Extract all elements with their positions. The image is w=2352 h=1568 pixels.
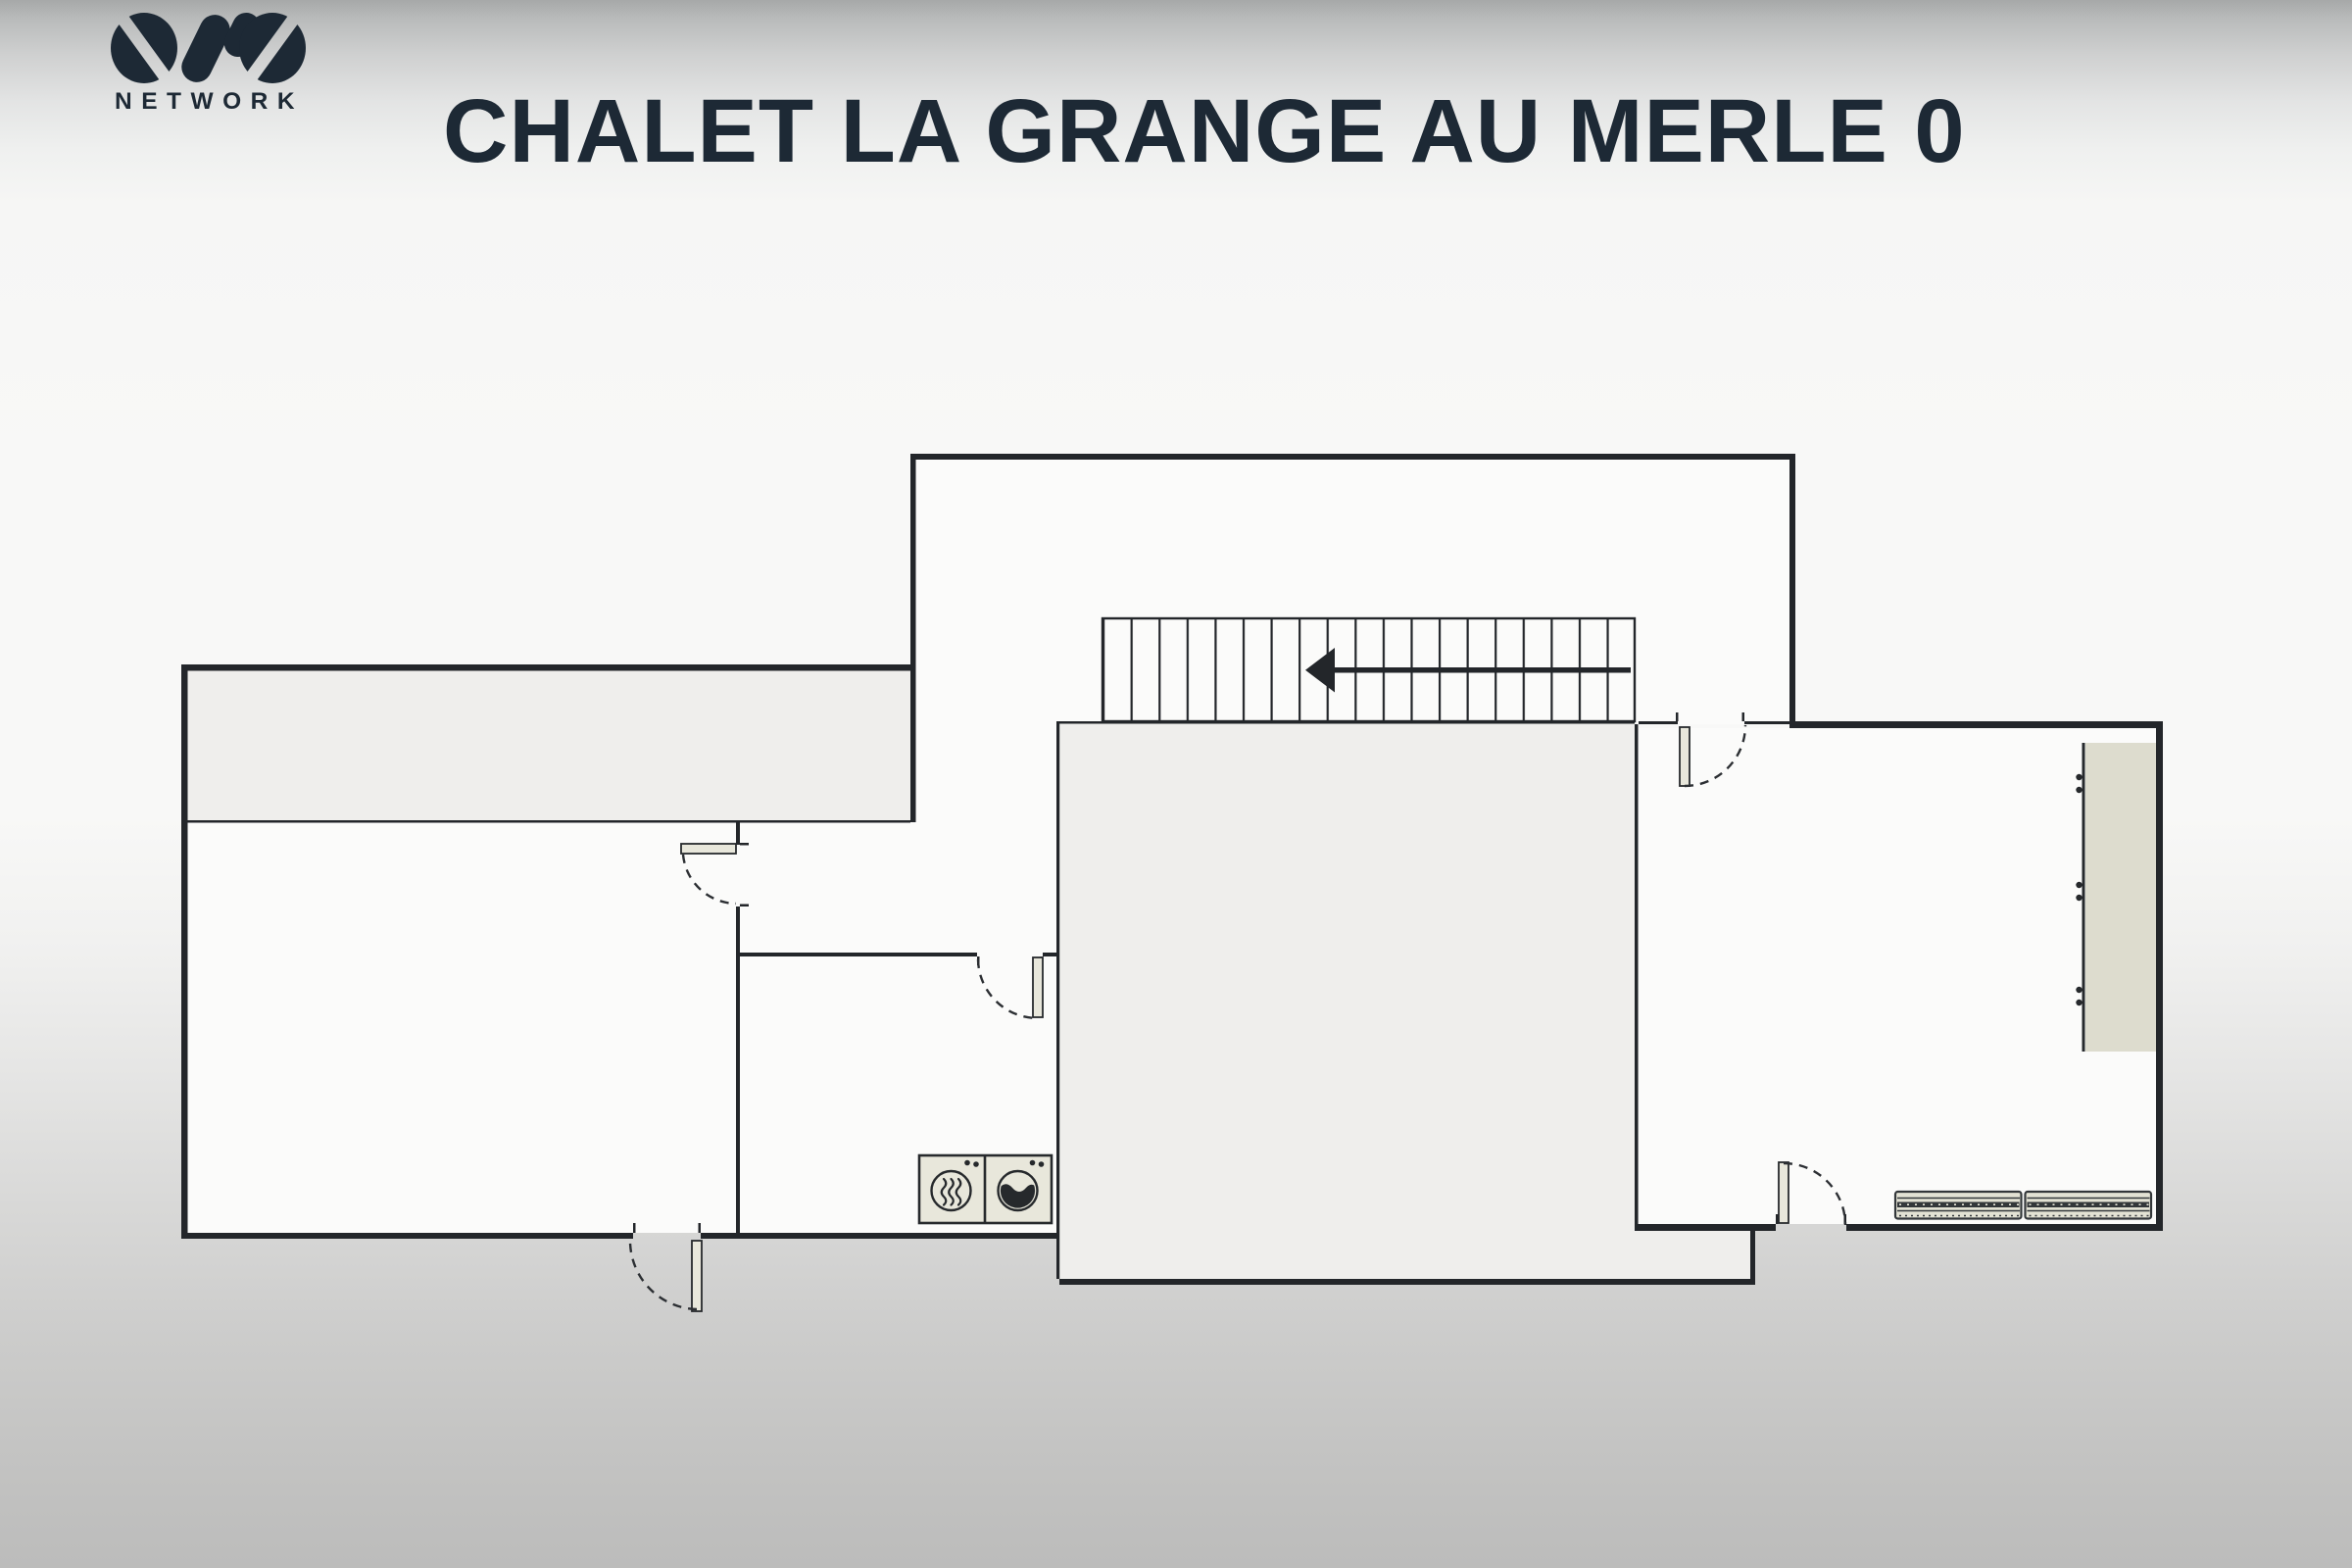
room-right xyxy=(1639,728,2156,1224)
room-left xyxy=(187,822,740,1233)
door-left-room-exterior xyxy=(630,1241,702,1311)
laundry-appliance-unit xyxy=(919,1155,1052,1223)
room-vestibule-upper xyxy=(915,721,1056,822)
staircase xyxy=(1102,618,1635,721)
room-vestibule xyxy=(740,822,1056,956)
wardrobe xyxy=(2076,743,2156,1052)
terrace-strip xyxy=(187,670,910,820)
bench-left xyxy=(1895,1192,2022,1219)
bench-right xyxy=(2026,1192,2152,1219)
page: NETWORK CHALET LA GRANGE AU MERLE 0 xyxy=(0,0,2352,1568)
room-fills xyxy=(187,460,2156,1279)
floor-plan xyxy=(0,0,2352,1568)
